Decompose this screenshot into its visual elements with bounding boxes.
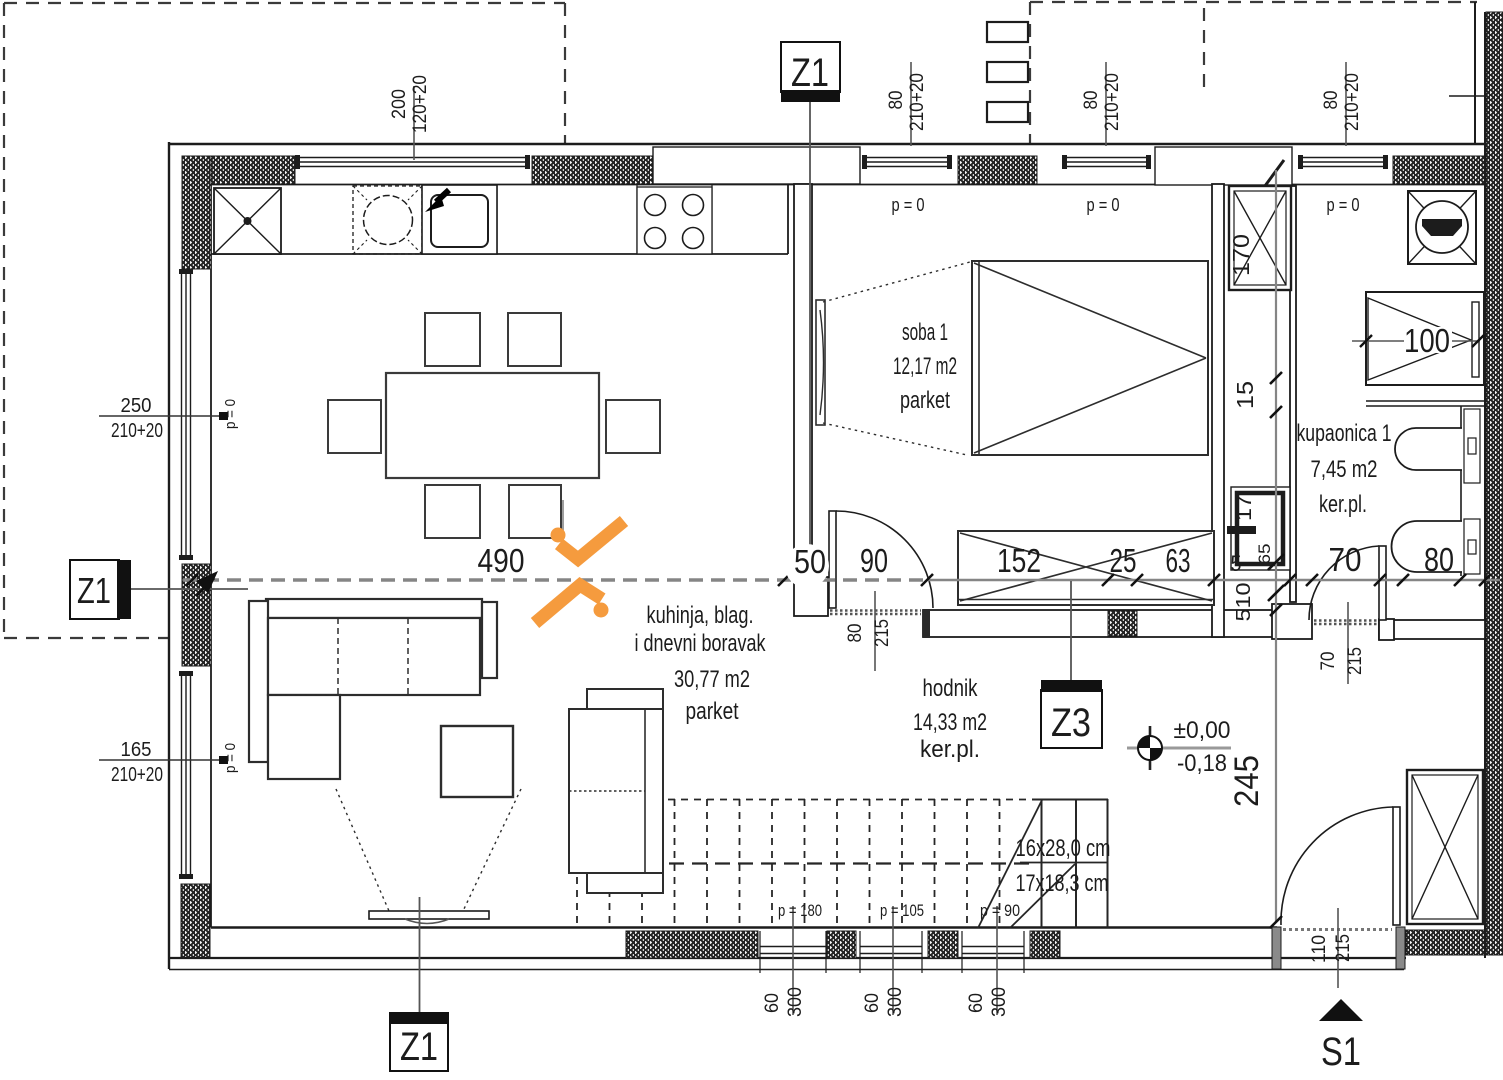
svg-text:152: 152: [997, 542, 1041, 579]
svg-text:65: 65: [1255, 544, 1274, 565]
svg-text:210+20: 210+20: [1342, 73, 1363, 131]
svg-text:80: 80: [1081, 91, 1102, 110]
svg-text:80: 80: [886, 91, 907, 110]
svg-text:80: 80: [1424, 541, 1454, 578]
svg-text:kupaonica 1: kupaonica 1: [1297, 420, 1392, 447]
svg-text:kuhinja, blag.: kuhinja, blag.: [647, 602, 754, 629]
svg-text:p = 0: p = 0: [892, 195, 925, 215]
svg-text:300: 300: [785, 987, 806, 1017]
svg-text:210+20: 210+20: [907, 73, 928, 131]
svg-text:210+20: 210+20: [1102, 73, 1123, 131]
svg-text:245: 245: [1228, 755, 1266, 807]
svg-text:ker.pl.: ker.pl.: [920, 736, 980, 763]
svg-text:p = 90: p = 90: [980, 901, 1020, 920]
svg-text:12,17 m2: 12,17 m2: [893, 353, 957, 380]
svg-text:30,77 m2: 30,77 m2: [674, 666, 750, 693]
svg-text:-0,18: -0,18: [1177, 750, 1227, 777]
svg-text:Z1: Z1: [791, 51, 829, 95]
svg-text:70: 70: [1329, 541, 1362, 578]
svg-text:165: 165: [121, 739, 152, 761]
svg-text:110: 110: [1309, 935, 1330, 963]
svg-text:250: 250: [121, 395, 152, 417]
svg-text:60: 60: [862, 993, 883, 1013]
svg-text:100: 100: [1404, 322, 1450, 359]
svg-text:215: 215: [872, 619, 893, 647]
svg-text:Z1: Z1: [77, 570, 111, 611]
svg-text:200: 200: [389, 89, 410, 119]
svg-text:Z1: Z1: [400, 1025, 438, 1069]
svg-text:5: 5: [1231, 551, 1242, 576]
svg-text:p = 0: p = 0: [1327, 195, 1360, 215]
svg-text:210+20: 210+20: [111, 764, 163, 786]
svg-text:300: 300: [885, 987, 906, 1017]
svg-text:i dnevni boravak: i dnevni boravak: [635, 630, 767, 657]
svg-text:Z3: Z3: [1051, 701, 1091, 745]
svg-text:17: 17: [1233, 495, 1256, 521]
svg-text:ker.pl.: ker.pl.: [1319, 491, 1367, 518]
svg-text:17x18,3 cm: 17x18,3 cm: [1016, 870, 1109, 897]
svg-text:60: 60: [762, 993, 783, 1013]
svg-text:80: 80: [845, 624, 866, 643]
svg-text:170: 170: [1228, 234, 1254, 276]
svg-text:80: 80: [1321, 91, 1342, 110]
svg-text:300: 300: [989, 987, 1010, 1017]
svg-text:7,45 m2: 7,45 m2: [1311, 456, 1378, 483]
svg-text:50: 50: [794, 543, 826, 580]
svg-text:63: 63: [1166, 542, 1191, 579]
svg-text:p = 0: p = 0: [222, 399, 239, 429]
svg-text:p = 0: p = 0: [1087, 195, 1120, 215]
svg-text:60: 60: [966, 993, 987, 1013]
svg-text:14,33 m2: 14,33 m2: [913, 709, 987, 736]
svg-text:p = 105: p = 105: [880, 901, 924, 920]
svg-text:p = 180: p = 180: [778, 901, 822, 920]
svg-text:parket: parket: [900, 387, 950, 414]
svg-text:hodnik: hodnik: [923, 675, 979, 702]
svg-text:25: 25: [1110, 542, 1137, 579]
svg-text:p = 0: p = 0: [222, 743, 239, 773]
svg-text:510: 510: [1233, 583, 1255, 622]
svg-text:90: 90: [860, 542, 888, 579]
svg-text:parket: parket: [686, 698, 739, 725]
svg-text:120+20: 120+20: [410, 75, 431, 133]
svg-text:S1: S1: [1321, 1030, 1361, 1074]
svg-text:215: 215: [1345, 647, 1366, 675]
svg-text:±0,00: ±0,00: [1174, 717, 1231, 744]
svg-text:490: 490: [478, 542, 525, 579]
svg-text:15: 15: [1232, 381, 1258, 409]
svg-text:210+20: 210+20: [111, 420, 163, 442]
svg-text:soba 1: soba 1: [902, 319, 948, 346]
svg-text:70: 70: [1318, 652, 1339, 671]
svg-text:16x28,0 cm: 16x28,0 cm: [1016, 835, 1111, 862]
svg-text:215: 215: [1333, 934, 1354, 962]
